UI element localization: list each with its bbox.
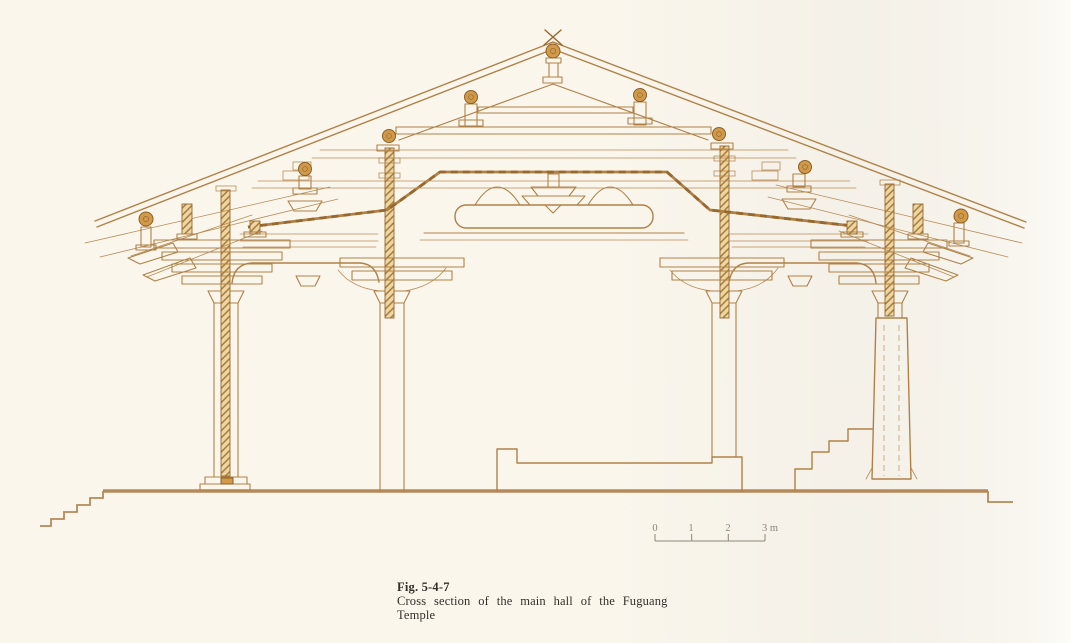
purlin-lower-right [799, 161, 812, 174]
book-page-scan: 0 1 2 3 m Fig. 5-4-7 Cross section of th… [0, 0, 1071, 643]
figure-caption-line1: Cross section of the main hall of the Fu… [397, 594, 737, 608]
purlin-upper-left [465, 91, 478, 104]
scale-label-2: 2 [725, 523, 730, 534]
purlin-ridge [546, 44, 560, 58]
figure-label: Fig. 5-4-7 [397, 580, 737, 594]
scan-shading [600, 0, 1071, 643]
purlin-eave-left [139, 212, 153, 226]
figure-caption: Fig. 5-4-7 Cross section of the main hal… [397, 580, 737, 622]
purlin-upper-right [634, 89, 647, 102]
figure-caption-line2: Temple [397, 608, 737, 622]
purlin-lower-left [299, 163, 312, 176]
scale-label-0: 0 [652, 523, 657, 534]
scale-label-3: 3 m [762, 523, 778, 534]
cross-section-drawing: 0 1 2 3 m [0, 0, 1071, 643]
scale-label-1: 1 [688, 523, 693, 534]
purlin-mid-left [383, 130, 396, 143]
purlin-mid-right [713, 128, 726, 141]
purlin-eave-right [954, 209, 968, 223]
